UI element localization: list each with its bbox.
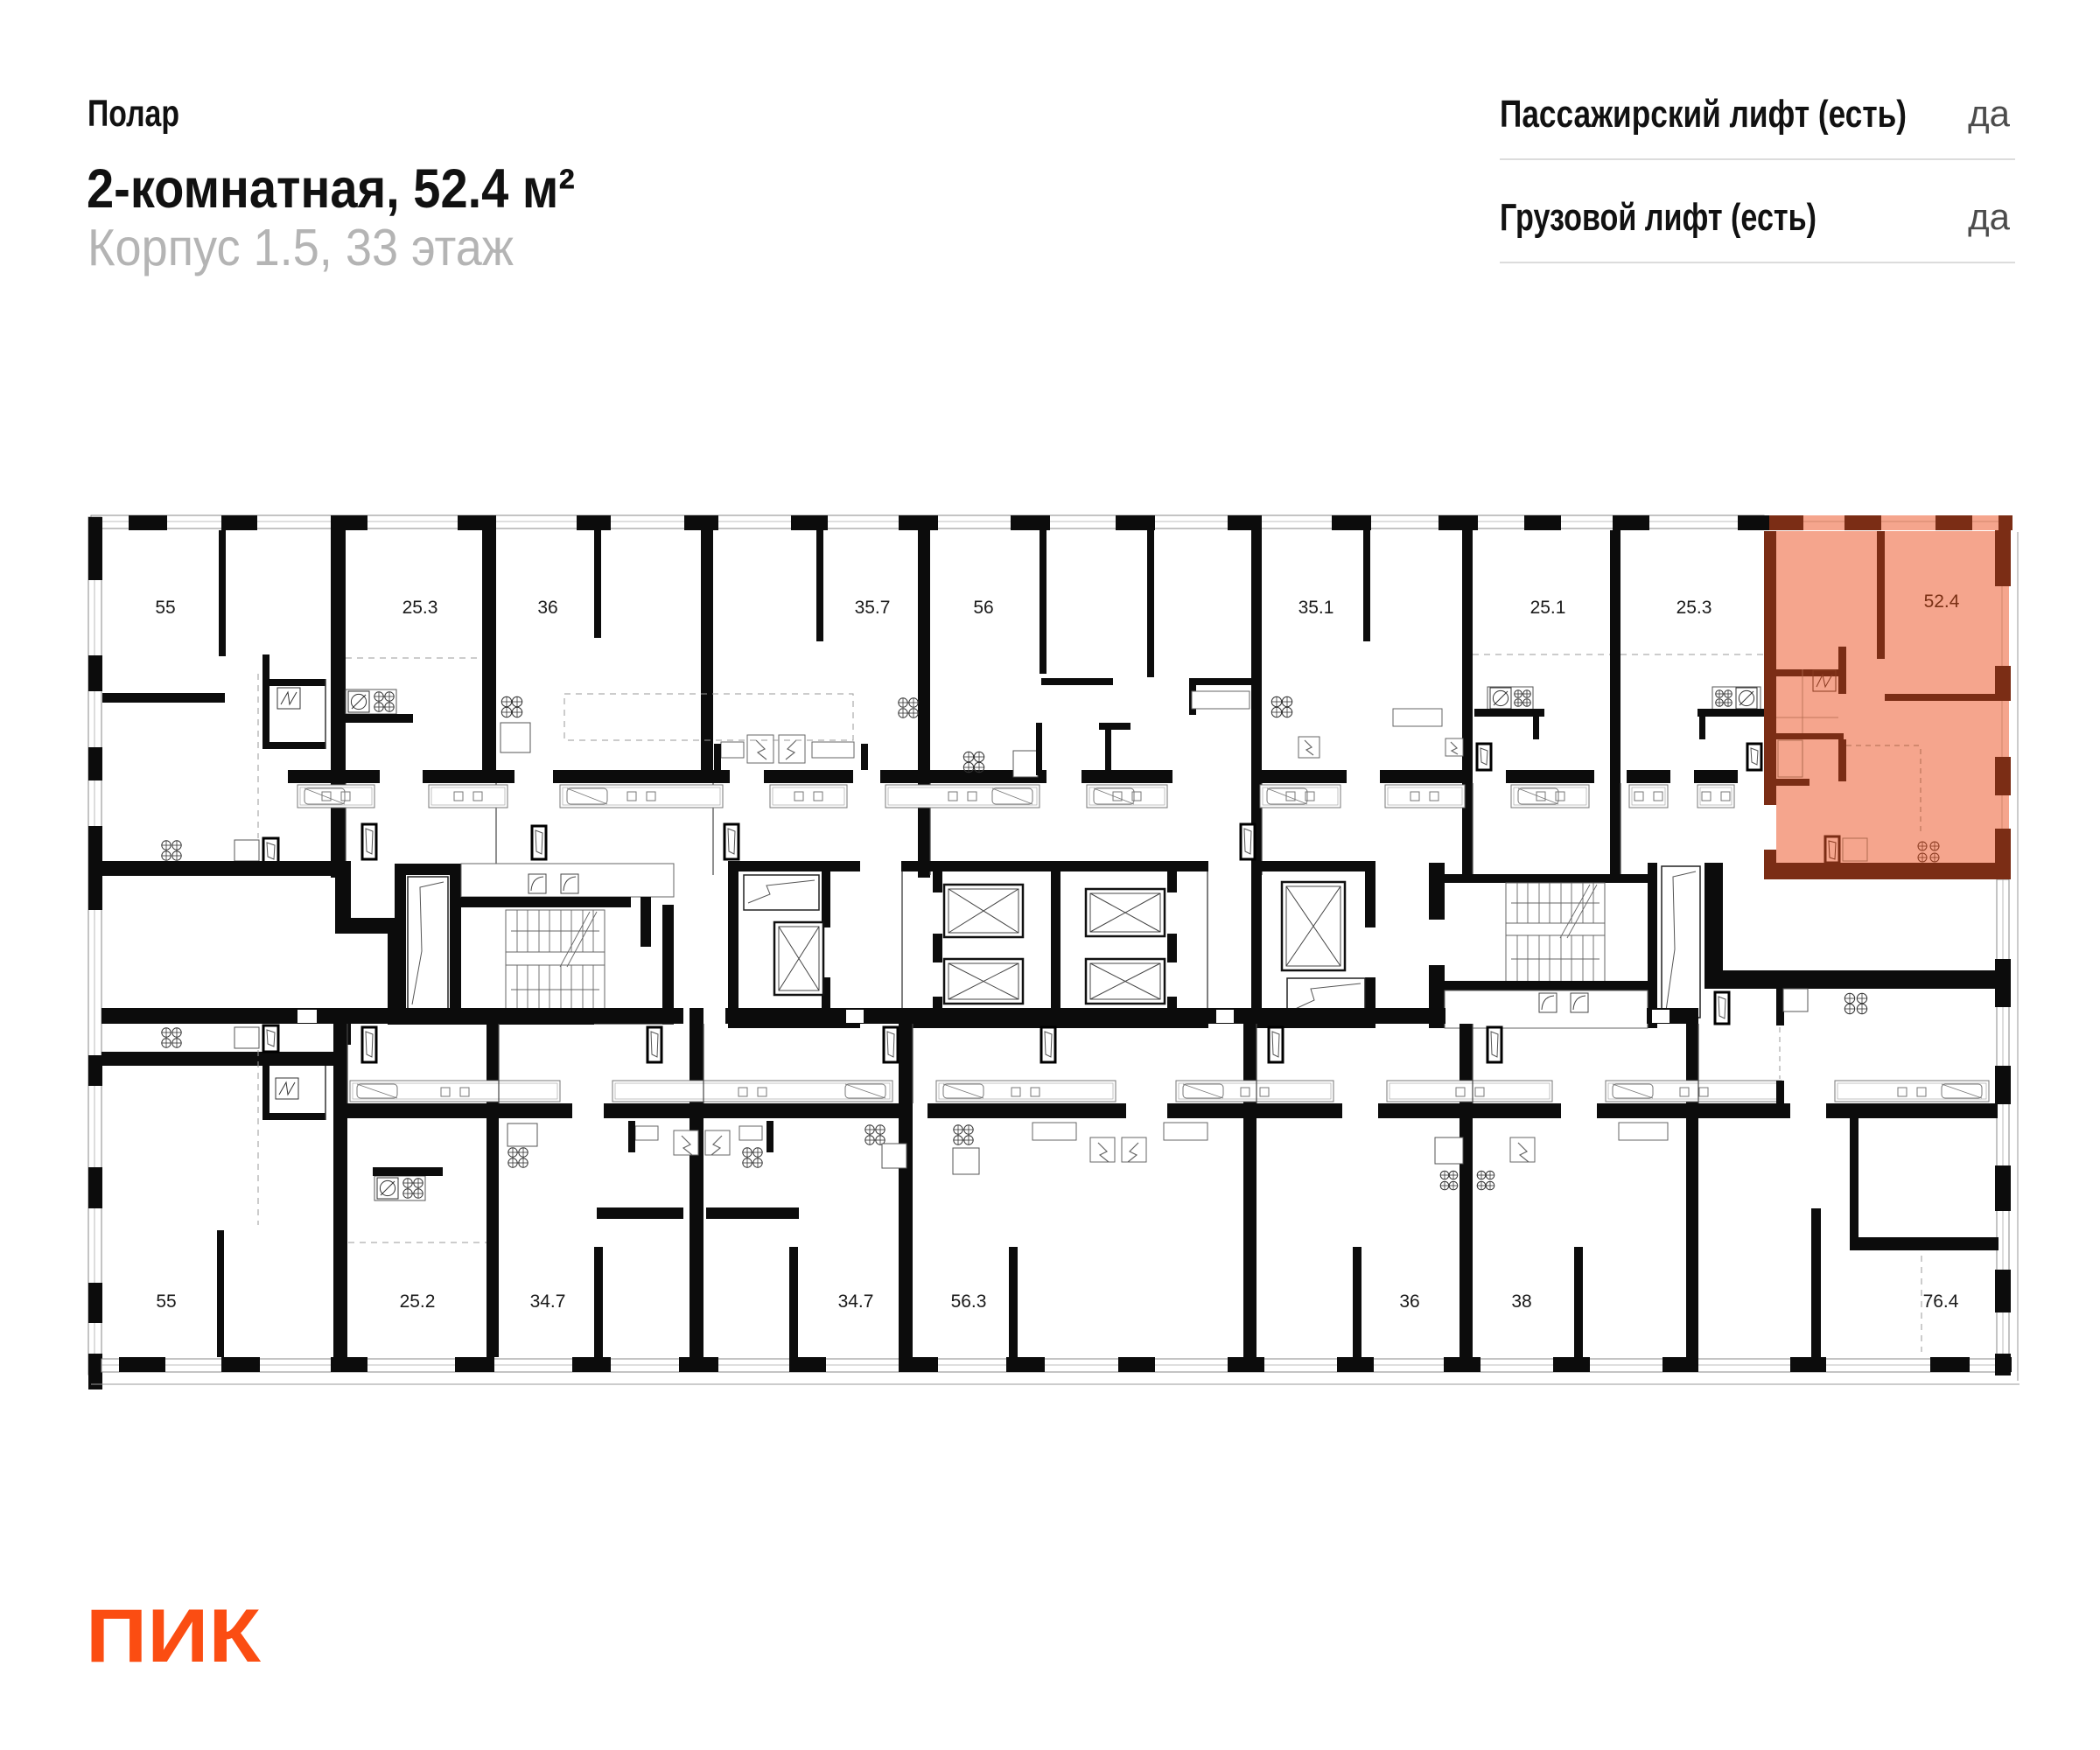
svg-text:25.3: 25.3 [1676,598,1712,618]
svg-text:36: 36 [1399,1291,1419,1312]
svg-text:25.2: 25.2 [400,1291,436,1312]
svg-text:да: да [1968,196,2011,237]
svg-text:34.7: 34.7 [838,1291,874,1312]
svg-text:34.7: 34.7 [530,1291,566,1312]
svg-text:Корпус 1.5, 33 этаж: Корпус 1.5, 33 этаж [87,219,514,276]
svg-text:55: 55 [155,598,175,618]
svg-text:38: 38 [1511,1291,1531,1312]
svg-text:52.4: 52.4 [1924,591,1960,612]
svg-text:Пассажирский лифт (есть): Пассажирский лифт (есть) [1500,93,1907,136]
svg-text:ПИК: ПИК [86,1594,262,1678]
svg-text:Полар: Полар [87,93,179,135]
svg-text:2-комнатная, 52.4 м²: 2-комнатная, 52.4 м² [87,158,575,220]
svg-text:Грузовой лифт (есть): Грузовой лифт (есть) [1500,196,1816,239]
svg-text:да: да [1968,93,2011,134]
svg-text:55: 55 [156,1291,176,1312]
svg-text:35.7: 35.7 [855,598,891,618]
svg-text:25.3: 25.3 [402,598,438,618]
svg-text:25.1: 25.1 [1530,598,1566,618]
svg-text:36: 36 [537,598,557,618]
svg-text:76.4: 76.4 [1923,1291,1959,1312]
svg-text:35.1: 35.1 [1298,598,1334,618]
svg-text:56.3: 56.3 [951,1291,987,1312]
svg-text:56: 56 [973,598,993,618]
